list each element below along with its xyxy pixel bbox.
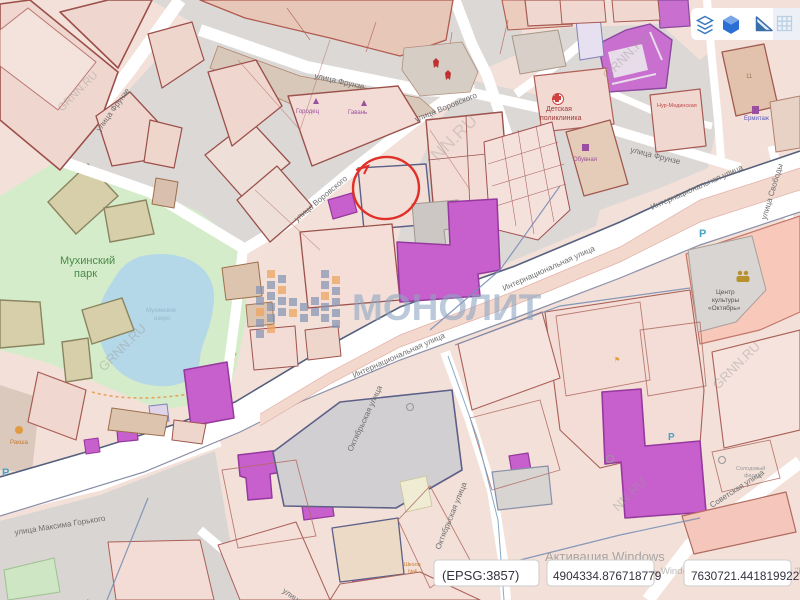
svg-text:7630721.441819922: 7630721.441819922 bbox=[691, 569, 799, 583]
svg-text:МОНОЛИТ: МОНОЛИТ bbox=[352, 287, 542, 328]
svg-text:Детская: Детская bbox=[546, 106, 572, 113]
svg-text:Обувная: Обувная bbox=[573, 157, 597, 163]
svg-text:Р: Р bbox=[699, 228, 706, 240]
svg-text:озеро: озеро bbox=[154, 316, 171, 322]
svg-text:Р: Р bbox=[668, 432, 675, 443]
svg-text:Центр: Центр bbox=[716, 289, 735, 296]
svg-text:⚑: ⚑ bbox=[614, 356, 620, 364]
svg-text:Р: Р bbox=[2, 467, 9, 479]
svg-text:Нур-Мединская: Нур-Мединская bbox=[657, 103, 697, 109]
svg-text:Ермитаж: Ермитаж bbox=[744, 116, 769, 122]
svg-text:Городец: Городец bbox=[296, 109, 320, 115]
svg-text:4904334.876718779: 4904334.876718779 bbox=[553, 569, 661, 583]
svg-text:Мухинский: Мухинский bbox=[60, 255, 115, 267]
svg-text:11: 11 bbox=[746, 74, 753, 80]
svg-text:Школа: Школа bbox=[404, 562, 422, 568]
svg-text:культуры: культуры bbox=[712, 297, 740, 304]
svg-text:поликлиника: поликлиника bbox=[540, 115, 582, 122]
svg-text:Ракша: Ракша bbox=[10, 440, 29, 446]
svg-text:Мухинское: Мухинское bbox=[146, 308, 177, 314]
svg-text:(EPSG:3857): (EPSG:3857) bbox=[442, 568, 519, 583]
svg-text:№4: №4 bbox=[408, 569, 417, 575]
svg-text:«Октябрь»: «Октябрь» bbox=[708, 304, 741, 312]
svg-text:Гавань: Гавань bbox=[348, 110, 367, 116]
svg-text:фасад: фасад bbox=[744, 473, 761, 479]
svg-text:Солодовый: Солодовый bbox=[736, 465, 765, 472]
svg-text:парк: парк bbox=[74, 268, 97, 280]
